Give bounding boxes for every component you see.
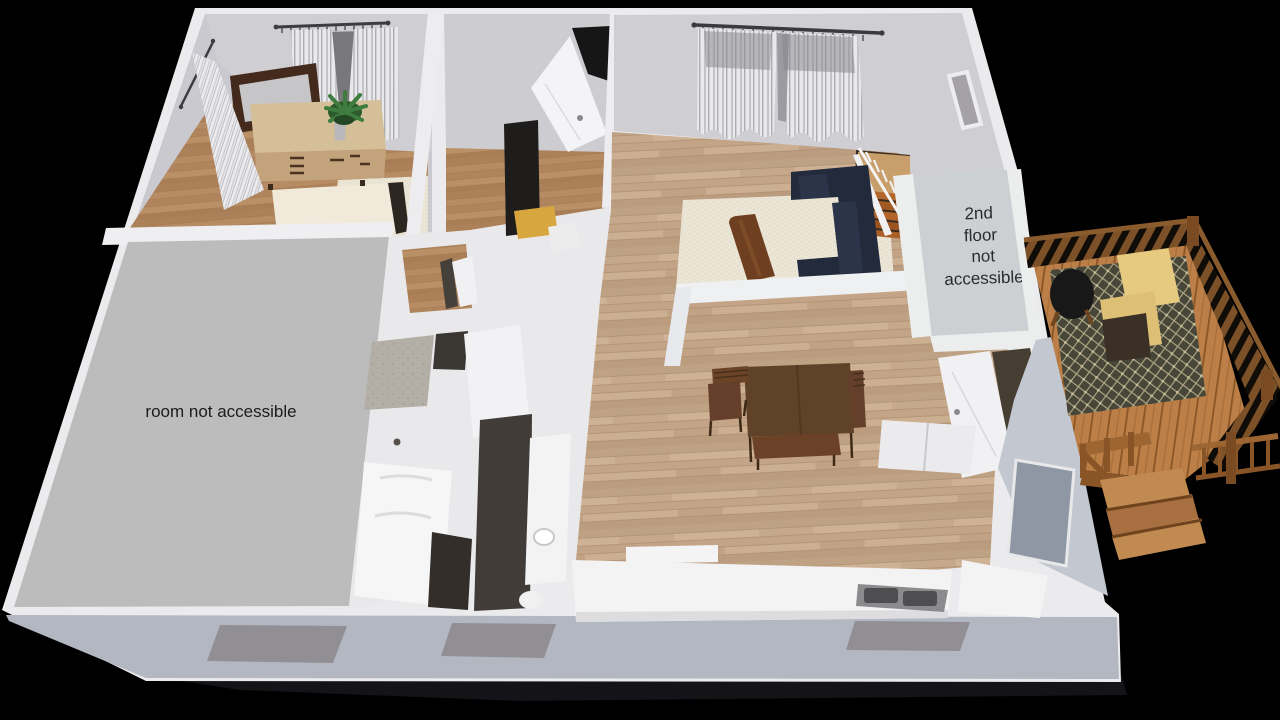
svg-text:accessible: accessible (944, 267, 1024, 289)
svg-text:not: not (971, 246, 996, 266)
svg-text:floor: floor (964, 225, 998, 245)
svg-text:2nd: 2nd (964, 203, 993, 223)
svg-text:room not accessible: room not accessible (145, 402, 296, 421)
